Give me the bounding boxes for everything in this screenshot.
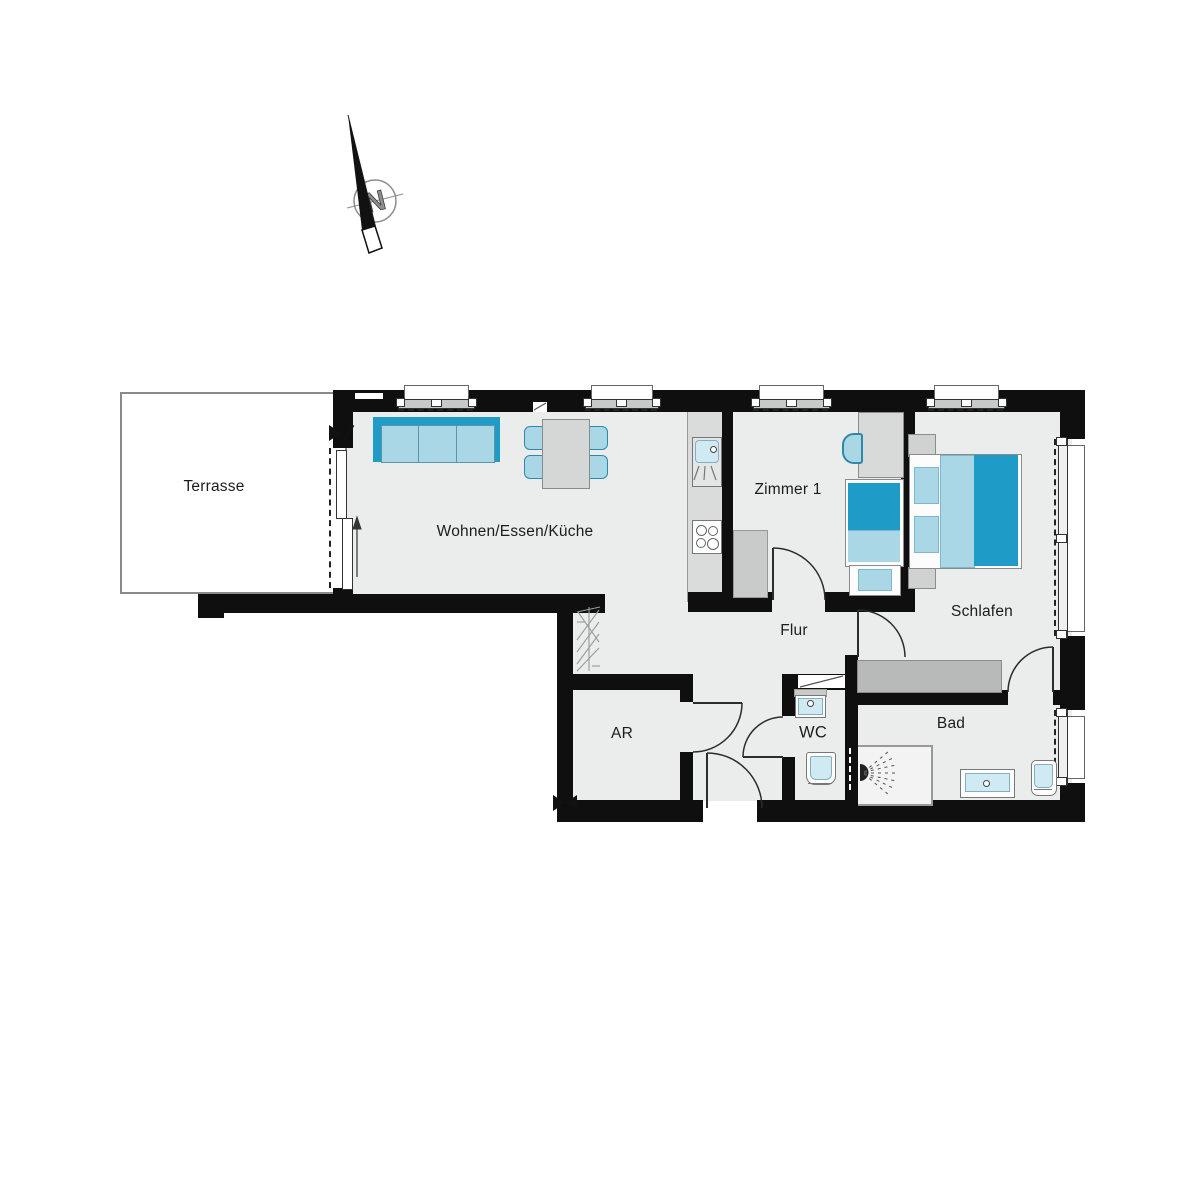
window-cap bbox=[468, 398, 477, 407]
room-label-zimmer1: Zimmer 1 bbox=[754, 481, 821, 499]
window-cap bbox=[998, 398, 1007, 407]
window-cap bbox=[583, 398, 592, 407]
faucet-icon bbox=[983, 780, 990, 787]
nightstand bbox=[908, 567, 936, 589]
sofa-cushion bbox=[381, 425, 419, 463]
compass-needle bbox=[348, 115, 375, 230]
wall bbox=[680, 752, 693, 815]
wall bbox=[198, 594, 224, 618]
entrance-threshold bbox=[703, 801, 757, 822]
window-cap bbox=[751, 398, 760, 407]
wall-joint bbox=[355, 393, 383, 399]
window bbox=[1066, 716, 1085, 779]
nightstand-top bbox=[858, 569, 892, 591]
window-cap bbox=[396, 398, 405, 407]
vent-mark bbox=[533, 402, 547, 412]
room-label-ar: AR bbox=[611, 725, 633, 743]
window-dash bbox=[928, 409, 1003, 411]
window bbox=[1066, 445, 1085, 632]
burner-icon bbox=[707, 538, 719, 550]
duct-niche bbox=[798, 675, 845, 688]
room-label-bad: Bad bbox=[937, 715, 965, 733]
window-dash bbox=[398, 409, 473, 411]
single-bed-blanket bbox=[848, 483, 900, 530]
faucet-icon bbox=[807, 700, 814, 707]
window-dash bbox=[753, 409, 828, 411]
window-cap bbox=[1056, 534, 1067, 543]
window-cap bbox=[616, 399, 627, 407]
room-label-wohnen: Wohnen/Essen/Küche bbox=[437, 523, 594, 541]
window-cap bbox=[431, 399, 442, 407]
window-cap bbox=[926, 398, 935, 407]
double-bed-sheet bbox=[940, 455, 975, 568]
window-cap bbox=[1056, 437, 1067, 446]
north-compass: N bbox=[347, 115, 403, 253]
double-bed-blanket bbox=[974, 455, 1018, 566]
burner-icon bbox=[696, 538, 706, 548]
window-cap bbox=[652, 398, 661, 407]
sideboard bbox=[857, 660, 1002, 693]
wall bbox=[333, 390, 353, 448]
window-cap bbox=[1056, 777, 1067, 786]
window-cap bbox=[823, 398, 832, 407]
pillow bbox=[914, 516, 939, 553]
pillow bbox=[914, 467, 939, 504]
window-dash bbox=[585, 409, 657, 411]
window-frame bbox=[1058, 710, 1068, 785]
window-cap bbox=[786, 399, 797, 407]
wall bbox=[1060, 412, 1085, 439]
wall bbox=[557, 674, 693, 690]
wall bbox=[722, 412, 733, 602]
wall bbox=[1060, 636, 1085, 710]
window-cap bbox=[961, 399, 972, 407]
compass-n-label: N bbox=[362, 184, 389, 219]
desk-chair bbox=[842, 433, 863, 464]
faucet-icon bbox=[710, 446, 717, 453]
wall bbox=[198, 594, 605, 613]
compass-tail bbox=[362, 226, 382, 253]
toilet-bowl bbox=[1034, 764, 1053, 788]
wardrobe bbox=[733, 530, 768, 598]
toilet-base bbox=[808, 783, 832, 787]
cooktop bbox=[692, 520, 722, 554]
single-bed-sheet bbox=[848, 530, 900, 562]
window-cap bbox=[1056, 708, 1067, 717]
floorplan-page: N bbox=[0, 0, 1200, 1200]
burner-icon bbox=[708, 526, 718, 536]
sofa-cushion bbox=[418, 425, 457, 463]
sliding-door bbox=[336, 450, 347, 519]
toilet-bowl bbox=[810, 756, 832, 780]
dining-table bbox=[542, 419, 590, 489]
toilet-base bbox=[1034, 789, 1052, 793]
room-label-terrasse: Terrasse bbox=[183, 478, 244, 496]
sofa-cushion bbox=[456, 425, 495, 463]
wall bbox=[845, 690, 858, 815]
window-cap bbox=[1056, 630, 1067, 639]
wall bbox=[557, 610, 573, 815]
shower bbox=[858, 745, 933, 806]
shaft-dashes bbox=[849, 748, 851, 790]
desk bbox=[858, 412, 904, 478]
sliding-door bbox=[342, 518, 353, 590]
room-label-flur: Flur bbox=[780, 622, 808, 640]
window-dash bbox=[1054, 439, 1056, 636]
wall bbox=[1060, 783, 1085, 822]
sliding-door-dash bbox=[329, 448, 331, 588]
room-label-wc: WC bbox=[799, 724, 827, 743]
burner-icon bbox=[696, 525, 707, 536]
room-label-schlafen: Schlafen bbox=[951, 603, 1013, 621]
